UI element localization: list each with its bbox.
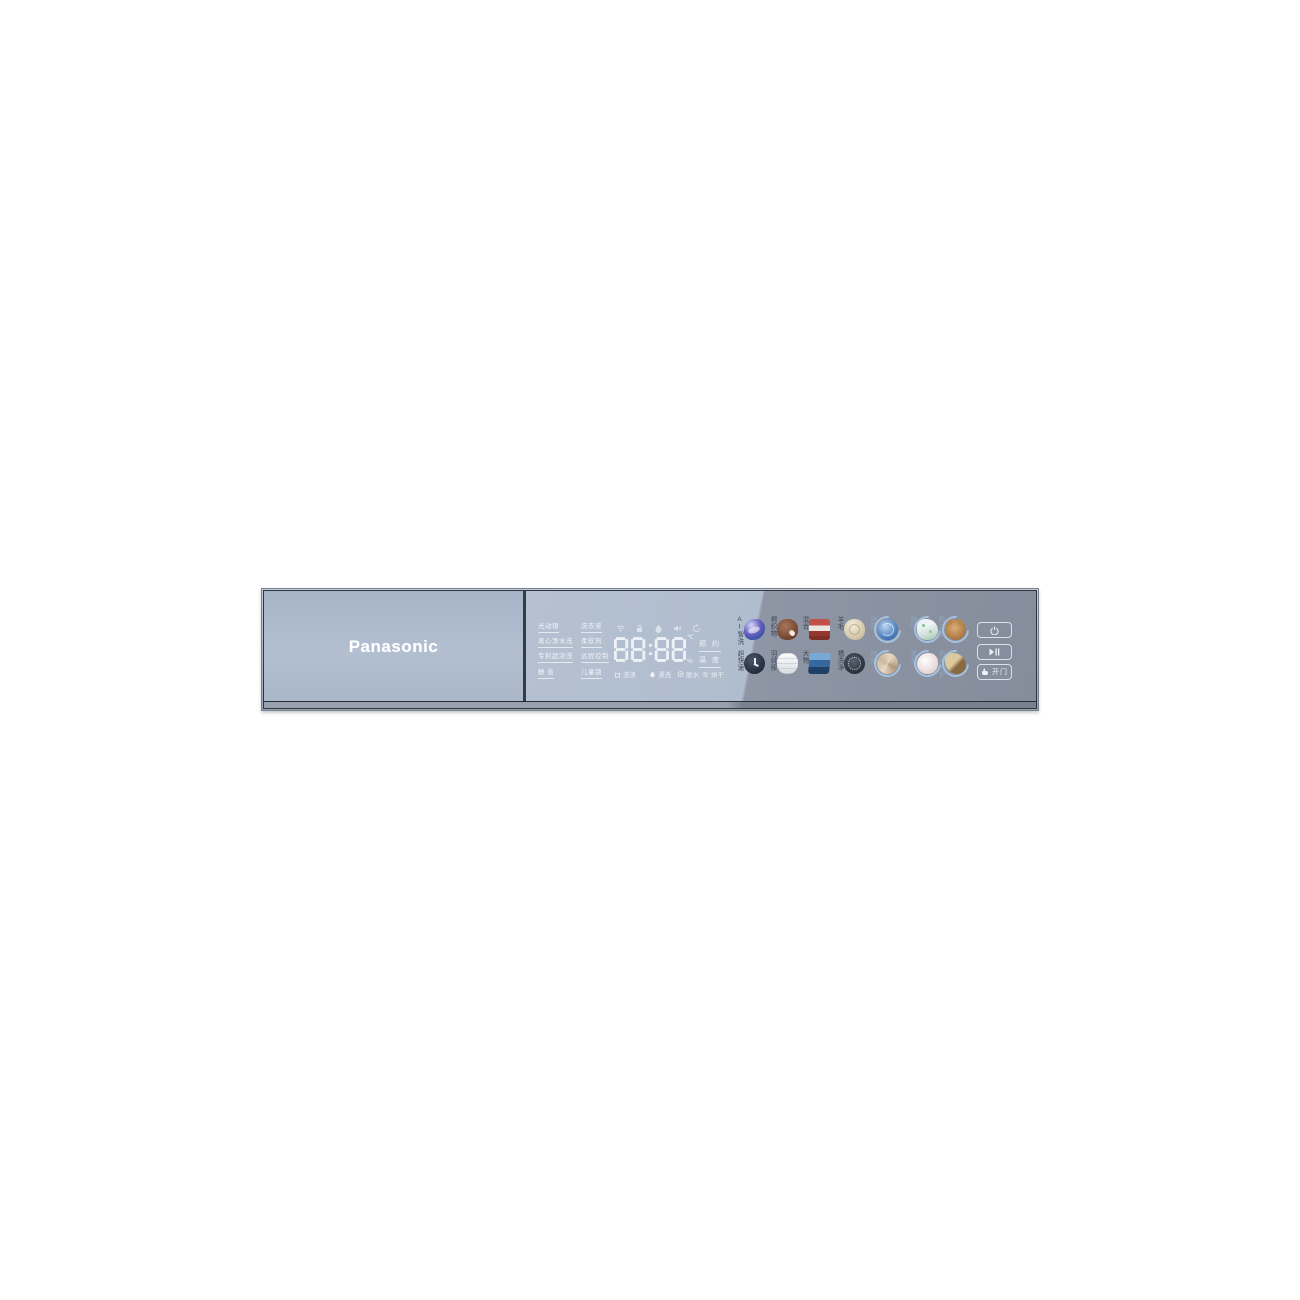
large-items-icon [808, 653, 831, 674]
mute-icon [673, 624, 682, 633]
washer-control-panel: Panasonic 光动银 离心净水洗 专利超浓洗 静 音 洗衣液 柔软剂 远程… [261, 588, 1039, 711]
ai-wash-icon [744, 619, 765, 640]
play-pause-icon [989, 648, 1000, 656]
lock-icon [635, 624, 644, 633]
program-down-jacket[interactable]: 羽绒服 [769, 650, 798, 674]
status-key-detergent[interactable]: 洗衣液 [581, 623, 602, 633]
wifi-icon [616, 624, 625, 633]
status-key-silent[interactable]: 静 音 [538, 669, 554, 679]
page-background: Panasonic 光动银 离心净水洗 专利超浓洗 静 音 洗衣液 柔软剂 远程… [0, 0, 1300, 1300]
wool-icon [844, 619, 865, 640]
program-label: 超快速 [736, 650, 743, 674]
fur-care-icon [945, 653, 966, 674]
open-door-button[interactable]: 开门 [977, 664, 1012, 680]
control-section: 光动银 离心净水洗 专利超浓洗 静 音 洗衣液 柔软剂 远程控制 儿童锁 ℃ %… [526, 591, 1036, 702]
start-pause-button[interactable] [977, 644, 1012, 660]
program-label: AI智洗 [736, 616, 743, 645]
program-anti-allergy[interactable]: 防过敏 [937, 616, 966, 640]
program-label: 槽洗净 [836, 650, 843, 674]
program-fluff[interactable]: 蓬松 [909, 650, 938, 674]
brand-logo: Panasonic [349, 637, 439, 657]
power-icon [990, 626, 999, 635]
temperature-key[interactable]: 温 度 [699, 655, 721, 668]
program-quick[interactable]: 超快速 [736, 650, 765, 674]
program-cotton[interactable]: 棉织物 [769, 616, 798, 640]
program-mixed[interactable]: 混合 [801, 616, 830, 640]
status-key-child-lock[interactable]: 儿童锁 [581, 669, 602, 679]
dry-icon [702, 671, 709, 678]
stage-dry: 烘干 [702, 669, 724, 679]
fluff-icon [917, 653, 938, 674]
stage-label: 漂洗 [658, 669, 671, 679]
program-sterilize[interactable]: 除菌 [869, 616, 898, 640]
program-wool[interactable]: 羊毛 [836, 616, 865, 640]
de-wrinkle-icon [877, 653, 898, 674]
spin-icon [677, 671, 684, 678]
status-key-clean-wash[interactable]: 离心净水洗 [538, 638, 573, 648]
logo-section: Panasonic [264, 591, 523, 702]
cycle-icon [692, 624, 701, 633]
panel-bottom-trim [264, 701, 1036, 708]
drop-icon [654, 624, 663, 633]
program-de-wrinkle[interactable]: 除皱 [869, 650, 898, 674]
sterilize-icon [877, 619, 898, 640]
open-door-label: 开门 [992, 667, 1008, 677]
panel-frame: Panasonic 光动银 离心净水洗 专利超浓洗 静 音 洗衣液 柔软剂 远程… [263, 590, 1037, 709]
program-label: 混合 [801, 616, 808, 640]
percent-unit: % [687, 658, 693, 665]
program-label: 棉织物 [769, 616, 776, 640]
program-fur-care[interactable]: 毛皮养护 [937, 650, 966, 678]
status-key-patent-wash[interactable]: 专利超浓洗 [538, 653, 573, 663]
reserve-key[interactable]: 预 约 [699, 639, 721, 652]
program-label: 羽绒服 [769, 650, 776, 674]
program-label: 羊毛 [836, 616, 843, 640]
temp-unit: ℃ [687, 633, 694, 641]
down-jacket-icon [777, 653, 798, 674]
quick-icon [744, 653, 765, 674]
program-drum-clean[interactable]: 槽洗净 [836, 650, 865, 674]
time-display [614, 636, 686, 663]
status-key-remote[interactable]: 远程控制 [581, 653, 609, 663]
mixed-icon [809, 619, 830, 640]
stage-spin: 脱水 [677, 669, 699, 679]
wash-icon [614, 671, 621, 678]
program-label: 大物 [801, 650, 808, 674]
program-ai-wash[interactable]: AI智洗 [736, 616, 765, 645]
stage-label: 脱水 [686, 669, 699, 679]
cotton-icon [777, 619, 798, 640]
drum-clean-icon [844, 653, 865, 674]
status-key-blue-ag[interactable]: 光动银 [538, 623, 559, 633]
rinse-icon [649, 671, 656, 678]
anti-allergy-icon [945, 619, 966, 640]
stage-label: 烘干 [711, 669, 724, 679]
deodorize-icon [917, 619, 938, 640]
program-deodorize[interactable]: 除味 [909, 616, 938, 640]
stage-wash: 洗涤 [614, 669, 636, 679]
program-large-items[interactable]: 大物 [801, 650, 830, 674]
hand-icon [981, 668, 989, 676]
stage-rinse: 漂洗 [649, 669, 671, 679]
power-button[interactable] [977, 622, 1012, 638]
status-key-softener[interactable]: 柔软剂 [581, 638, 602, 648]
stage-label: 洗涤 [623, 669, 636, 679]
